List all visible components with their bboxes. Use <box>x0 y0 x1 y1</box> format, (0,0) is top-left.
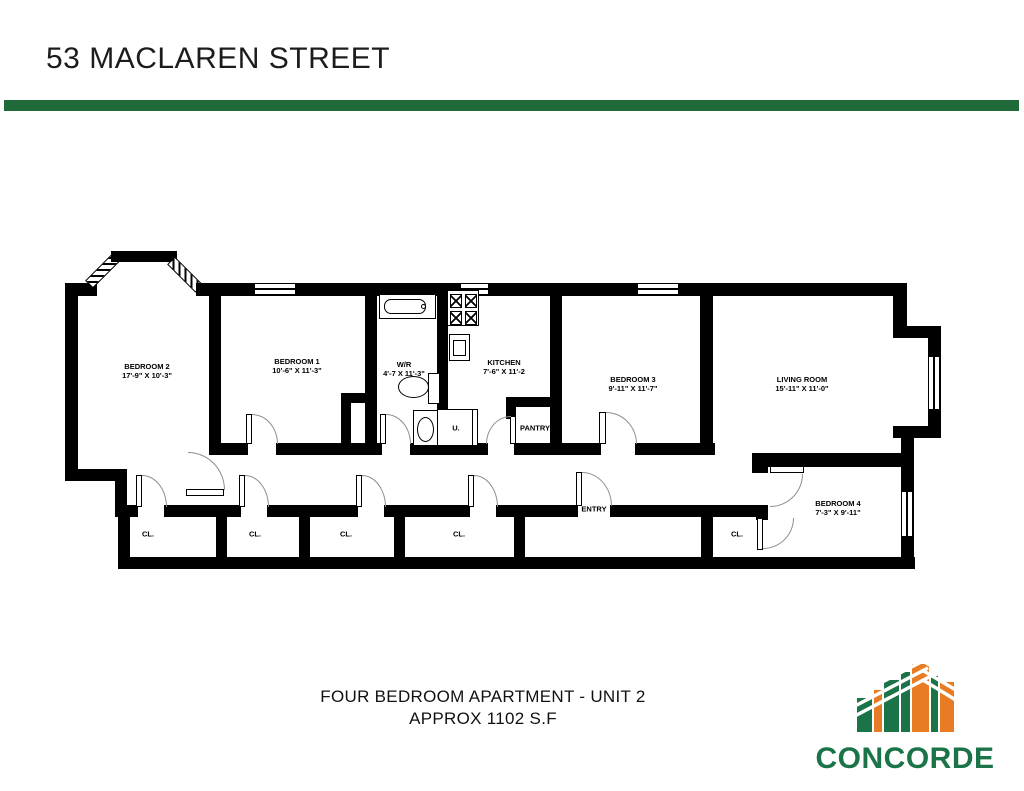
room-name: BEDROOM 3 <box>608 375 657 384</box>
utility-label: U. <box>452 424 460 433</box>
room-name: KITCHEN <box>483 358 525 367</box>
page: 53 MACLAREN STREET <box>0 0 1024 791</box>
bathtub-basin <box>384 299 426 314</box>
wall <box>65 283 78 481</box>
wall <box>341 393 375 403</box>
toilet-bowl <box>417 417 434 442</box>
door-swing-arc <box>763 518 794 549</box>
door-swing-arc <box>474 475 498 507</box>
room-dims: 7'-6" X 11'-2 <box>483 367 525 376</box>
wall <box>216 505 227 569</box>
bathtub-drain <box>421 304 426 309</box>
stove-burner <box>450 311 462 325</box>
stove-burner <box>465 294 477 308</box>
room-name: W/R <box>383 360 425 369</box>
door-swing-arc <box>582 472 612 506</box>
footer-line1: FOUR BEDROOM APARTMENT - UNIT 2 <box>255 686 711 708</box>
closet-label: CL. <box>453 530 465 539</box>
door-swing-arc <box>386 414 411 444</box>
door-leaf <box>770 466 804 473</box>
wall <box>700 283 713 455</box>
wall <box>701 505 713 569</box>
room-dims: 10'-6" X 11'-3" <box>272 366 321 375</box>
room-name: LIVING ROOM <box>775 375 828 384</box>
door-leaf <box>186 489 224 496</box>
stove-burner <box>450 294 462 308</box>
room-dims: 9'-11" X 11'-7" <box>608 384 657 393</box>
sink <box>398 376 429 398</box>
door-swing-arc <box>770 474 803 507</box>
kitchen-sink-basin <box>453 340 466 356</box>
window <box>928 354 941 412</box>
divider-bar <box>4 100 1019 111</box>
concorde-logo: CONCORDE <box>800 648 1010 783</box>
room-dims: 7'-3" X 9'-11" <box>815 508 860 517</box>
utility-unit-door <box>472 409 478 446</box>
concorde-logo-icon <box>835 652 985 740</box>
door-leaf <box>599 412 606 444</box>
wall <box>550 283 562 455</box>
wall <box>267 505 358 517</box>
wall <box>394 505 405 569</box>
wall <box>111 251 177 262</box>
window <box>635 283 681 296</box>
entry-label: ENTRY <box>581 505 606 514</box>
page-title: 53 MACLAREN STREET <box>46 42 390 76</box>
wall <box>118 505 130 569</box>
door-swing-arc <box>252 414 278 444</box>
wall <box>299 505 310 569</box>
pantry-label: PANTRY <box>520 424 550 433</box>
room-name: BEDROOM 1 <box>272 357 321 366</box>
wall <box>209 283 221 449</box>
room-dims: 15'-11" X 11'-0" <box>775 384 828 393</box>
stove-burner <box>465 311 477 325</box>
window <box>252 283 298 296</box>
room-label-living-room: LIVING ROOM 15'-11" X 11'-0" <box>775 375 828 393</box>
room-name: BEDROOM 4 <box>815 499 860 508</box>
closet-label: CL. <box>249 530 261 539</box>
wall <box>490 283 636 296</box>
wall <box>365 283 377 449</box>
door-swing-arc <box>188 452 225 490</box>
door-swing-arc <box>486 416 511 444</box>
room-label-washroom: W/R 4'-7 X 11'-3" <box>383 360 425 378</box>
wall <box>928 326 941 356</box>
wall <box>680 283 907 296</box>
wall <box>196 283 254 296</box>
room-label-bedroom4: BEDROOM 4 7'-3" X 9'-11" <box>815 499 860 517</box>
room-label-bedroom3: BEDROOM 3 9'-11" X 11'-7" <box>608 375 657 393</box>
wall <box>610 505 715 517</box>
room-label-bedroom2: BEDROOM 2 17'-9" X 10'-3" <box>122 362 172 380</box>
closet-label: CL. <box>731 530 743 539</box>
room-label-kitchen: KITCHEN 7'-6" X 11'-2 <box>483 358 525 376</box>
wall <box>164 505 241 517</box>
room-name: BEDROOM 2 <box>122 362 172 371</box>
concorde-logo-text: CONCORDE <box>800 742 1010 776</box>
wall <box>752 453 768 473</box>
room-dims: 4'-7 X 11'-3" <box>383 369 425 378</box>
wall <box>496 505 578 517</box>
door-swing-arc <box>362 475 386 507</box>
door-swing-arc <box>142 475 167 507</box>
room-label-bedroom1: BEDROOM 1 10'-6" X 11'-3" <box>272 357 321 375</box>
footer-line2: APPROX 1102 S.F <box>255 708 711 730</box>
door-swing-arc <box>245 475 269 507</box>
wall <box>514 505 525 569</box>
window <box>901 489 914 539</box>
closet-label: CL. <box>340 530 352 539</box>
door-swing-arc <box>606 412 637 444</box>
vanity <box>428 373 440 404</box>
wall <box>752 453 913 467</box>
closet-label: CL. <box>142 530 154 539</box>
footer-caption: FOUR BEDROOM APARTMENT - UNIT 2 APPROX 1… <box>255 686 711 730</box>
room-dims: 17'-9" X 10'-3" <box>122 371 172 380</box>
